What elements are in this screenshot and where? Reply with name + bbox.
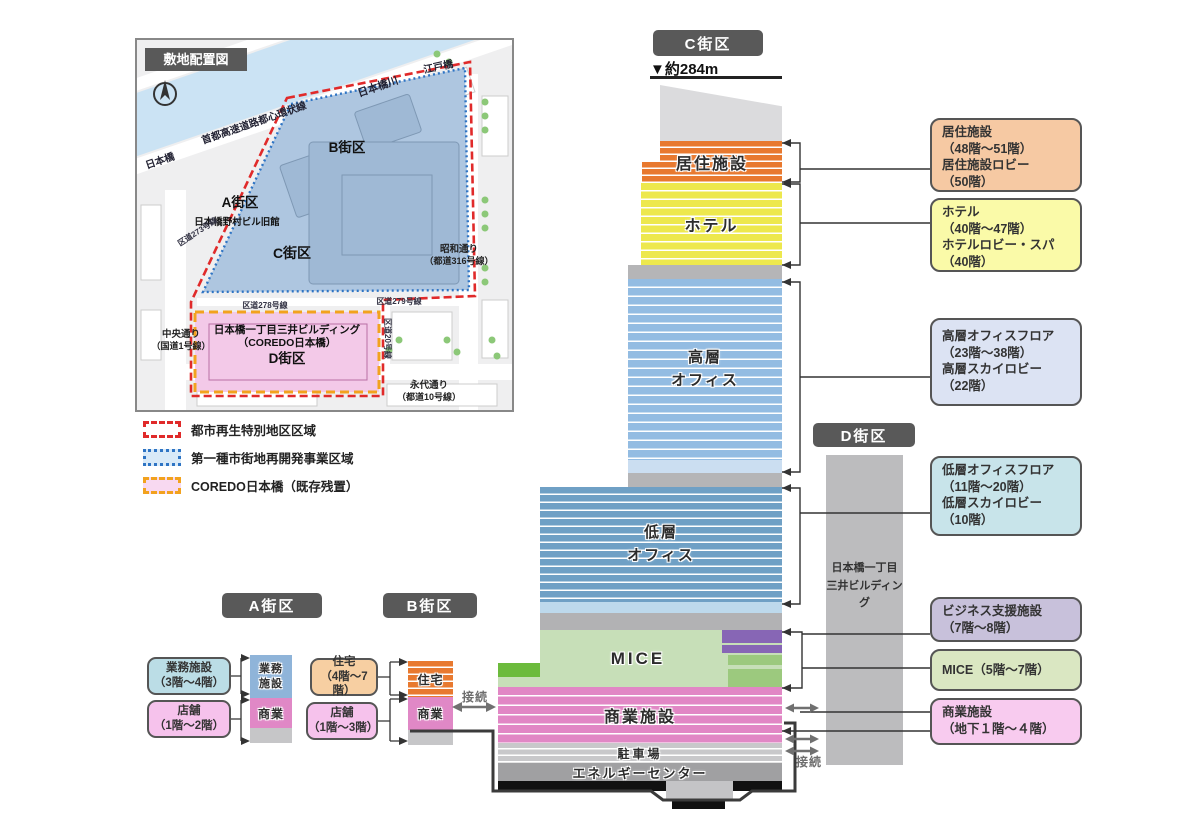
a-callout-office-l1: 業務施設 [166, 661, 212, 676]
a-callout-shop-l2: （1階～2階） [154, 719, 224, 734]
callout-business-support: ビジネス支援施設 （7階～8階） [930, 597, 1082, 642]
legend-swatch-red-dashed [143, 421, 181, 438]
callout-commercial: 商業施設 （地下１階～４階） [930, 698, 1082, 745]
tower-mice-band-2 [728, 669, 782, 687]
tower-high-office-label-l2: オフィス [671, 370, 739, 393]
callout-commercial-l1: 商業施設 [942, 704, 1070, 721]
map-label-chuo-sub: （国道1号線） [151, 340, 210, 351]
tower-high-office-label: 高層 オフィス [628, 279, 782, 460]
callout-hotel-l2: （40階～47階） [942, 221, 1070, 238]
tower-basement-right [733, 781, 782, 791]
callout-residential: 居住施設 （48階～51階） 居住施設ロビー （50階） [930, 118, 1082, 192]
legend-item-special-district: 都市再生特別地区区域 [143, 420, 316, 439]
callout-low-office-l4: （10階） [942, 512, 1070, 529]
legend-label: 都市再生特別地区区域 [191, 420, 316, 439]
b-block-callout-shop: 店舗 （1階～3階） [306, 702, 378, 740]
a-tower-office-l2: 施設 [259, 677, 283, 692]
tower-height-line [650, 76, 782, 79]
b-block-tower-commercial: 商業 [408, 697, 453, 730]
a-callout-shop-l1: 店舗 [178, 704, 201, 719]
map-label-showa: 昭和通り [440, 243, 478, 255]
callout-hotel-l1: ホテル [942, 204, 1070, 221]
tower-mice-label: MICE [540, 630, 736, 687]
map-label-road20: 区道20号線 [383, 318, 393, 359]
legend-swatch-orange-dashed [143, 477, 181, 494]
callout-high-office-l2: （23階～38階） [942, 345, 1070, 362]
callout-business-l1: ビジネス支援施設 [942, 603, 1070, 620]
map-label-road279: 区道279号線 [376, 296, 421, 306]
tower-mice-band-1 [728, 655, 782, 665]
bracket-arrowheads [782, 139, 791, 735]
a-block-label: A街区 [222, 593, 322, 618]
page: 敷地配置図 首都高速道路都心環状線 日本橋川 江戸橋 日本橋 B街区 A街区 日… [0, 0, 1200, 818]
b-block-tower-base [408, 730, 453, 745]
callout-residential-l3: 居住施設ロビー [942, 157, 1070, 174]
tower-high-office-lobby-band [628, 460, 782, 473]
d-building-name-line2: 三井ビルディング [826, 578, 903, 613]
tower-mechanical-band-1 [628, 265, 782, 279]
tower-roof [660, 85, 782, 141]
legend-label: COREDO日本橋（既存残置） [191, 476, 358, 495]
connection-label-left: 接続 [462, 688, 488, 705]
callout-commercial-l2: （地下１階～４階） [942, 721, 1070, 738]
callout-business-l2: （7階～8階） [942, 620, 1070, 637]
callout-residential-l2: （48階～51階） [942, 141, 1070, 158]
map-label-chuo: 中央通り [162, 328, 200, 340]
a-block-callout-shop: 店舗 （1階～2階） [147, 700, 231, 738]
tower-basement-notch [666, 781, 733, 799]
b-callout-residence-l1: 住宅 [333, 655, 356, 670]
callout-hotel-l3: ホテルロビー・スパ [942, 237, 1070, 254]
a-block-tower-office: 業務 施設 [250, 655, 292, 698]
callout-high-office-l3: 高層スカイロビー [942, 361, 1070, 378]
b-callout-shop-l2: （1階～3階） [308, 721, 376, 736]
map-label-eitai: 永代通り [409, 379, 448, 391]
callout-residential-l1: 居住施設 [942, 124, 1070, 141]
tower-low-office-label-l1: 低層 [644, 522, 678, 545]
tower-hotel-label: ホテル [641, 183, 782, 265]
callout-high-office-l1: 高層オフィスフロア [942, 328, 1070, 345]
callout-low-office-l2: （11階～20階） [942, 479, 1070, 496]
tower-basement-left [498, 781, 666, 791]
b-tower-residence-label: 住宅 [417, 671, 443, 688]
callout-mice-l1: MICE（5階～7階） [942, 662, 1050, 679]
legend-item-coredo: COREDO日本橋（既存残置） [143, 476, 358, 495]
callout-hotel: ホテル （40階～47階） ホテルロビー・スパ （40階） [930, 198, 1082, 272]
map-label-mitsui2: （COREDO日本橋） [238, 336, 337, 349]
site-map-drawing: 敷地配置図 首都高速道路都心環状線 日本橋川 江戸橋 日本橋 B街区 A街区 日… [137, 40, 512, 410]
connection-label-right: 接続 [796, 753, 822, 770]
callout-high-office-l4: （22階） [942, 378, 1070, 395]
map-label-block-b: B街区 [329, 139, 366, 155]
tower-residential-label: 居住施設 [642, 141, 782, 183]
callout-low-office-l1: 低層オフィスフロア [942, 462, 1070, 479]
b-callout-shop-l1: 店舗 [331, 706, 354, 721]
tower-high-office-label-l1: 高層 [688, 347, 722, 370]
d-block-building: 日本橋一丁目 三井ビルディング [826, 455, 903, 765]
d-building-name-line1: 日本橋一丁目 [832, 560, 898, 578]
callout-high-office: 高層オフィスフロア （23階～38階） 高層スカイロビー （22階） [930, 318, 1082, 406]
callout-residential-l4: （50階） [942, 174, 1070, 191]
map-label-eitai-sub: （都道10号線） [397, 391, 461, 402]
callout-low-office-l3: 低層スカイロビー [942, 495, 1070, 512]
tower-low-office-lobby-band [540, 602, 782, 613]
map-title: 敷地配置図 [163, 52, 228, 67]
tower-parking-label: 駐車場 [498, 743, 782, 763]
map-label-road278: 区道278号線 [242, 300, 287, 310]
tower-mice-left-lower [498, 677, 540, 687]
b-block-label: B街区 [383, 593, 477, 618]
a-block-tower-commercial: 商業 [250, 698, 292, 728]
tower-mice-left-stub [498, 663, 540, 677]
b-tower-commercial-label: 商業 [417, 705, 443, 722]
legend-label: 第一種市街地再開発事業区域 [191, 448, 354, 467]
tower-mechanical-band-2 [628, 473, 782, 487]
b-block-callout-residence: 住宅 （4階～7階） [310, 658, 378, 696]
a-block-callout-office: 業務施設 （3階～4階） [147, 657, 231, 695]
a-tower-commercial-label: 商業 [258, 705, 284, 722]
map-label-showa-sub: （都道316号線） [424, 255, 493, 266]
tower-mechanical-band-3 [540, 613, 782, 630]
legend-item-redevelopment: 第一種市街地再開発事業区域 [143, 448, 354, 467]
c-block-label: C街区 [653, 30, 763, 56]
tower-low-office-label-l2: オフィス [627, 545, 695, 568]
legend-swatch-blue-dotted [143, 449, 181, 466]
b-block-tower-residence: 住宅 [408, 661, 453, 697]
b-callout-residence-l2: （4階～7階） [312, 670, 376, 700]
tower-low-office-label: 低層 オフィス [540, 487, 782, 602]
map-label-block-d: D街区 [269, 350, 306, 366]
a-callout-office-l2: （3階～4階） [154, 676, 224, 691]
a-block-tower-base [250, 728, 292, 743]
map-label-block-c: C街区 [273, 245, 311, 261]
callout-hotel-l4: （40階） [942, 254, 1070, 271]
map-label-mitsui1: 日本橋一丁目三井ビルディング [214, 323, 361, 336]
tower-energy-label: エネルギーセンター [498, 763, 782, 781]
map-road-278 [197, 298, 469, 306]
tower-basement-pit [672, 799, 725, 809]
a-tower-office-l1: 業務 [259, 662, 283, 677]
tower-commercial-label: 商業施設 [498, 687, 782, 743]
callout-low-office: 低層オフィスフロア （11階～20階） 低層スカイロビー （10階） [930, 456, 1082, 536]
d-block-label: D街区 [813, 423, 915, 447]
map-label-block-a: A街区 [222, 194, 259, 210]
site-map: 敷地配置図 首都高速道路都心環状線 日本橋川 江戸橋 日本橋 B街区 A街区 日… [135, 38, 514, 412]
callout-mice: MICE（5階～7階） [930, 649, 1082, 691]
